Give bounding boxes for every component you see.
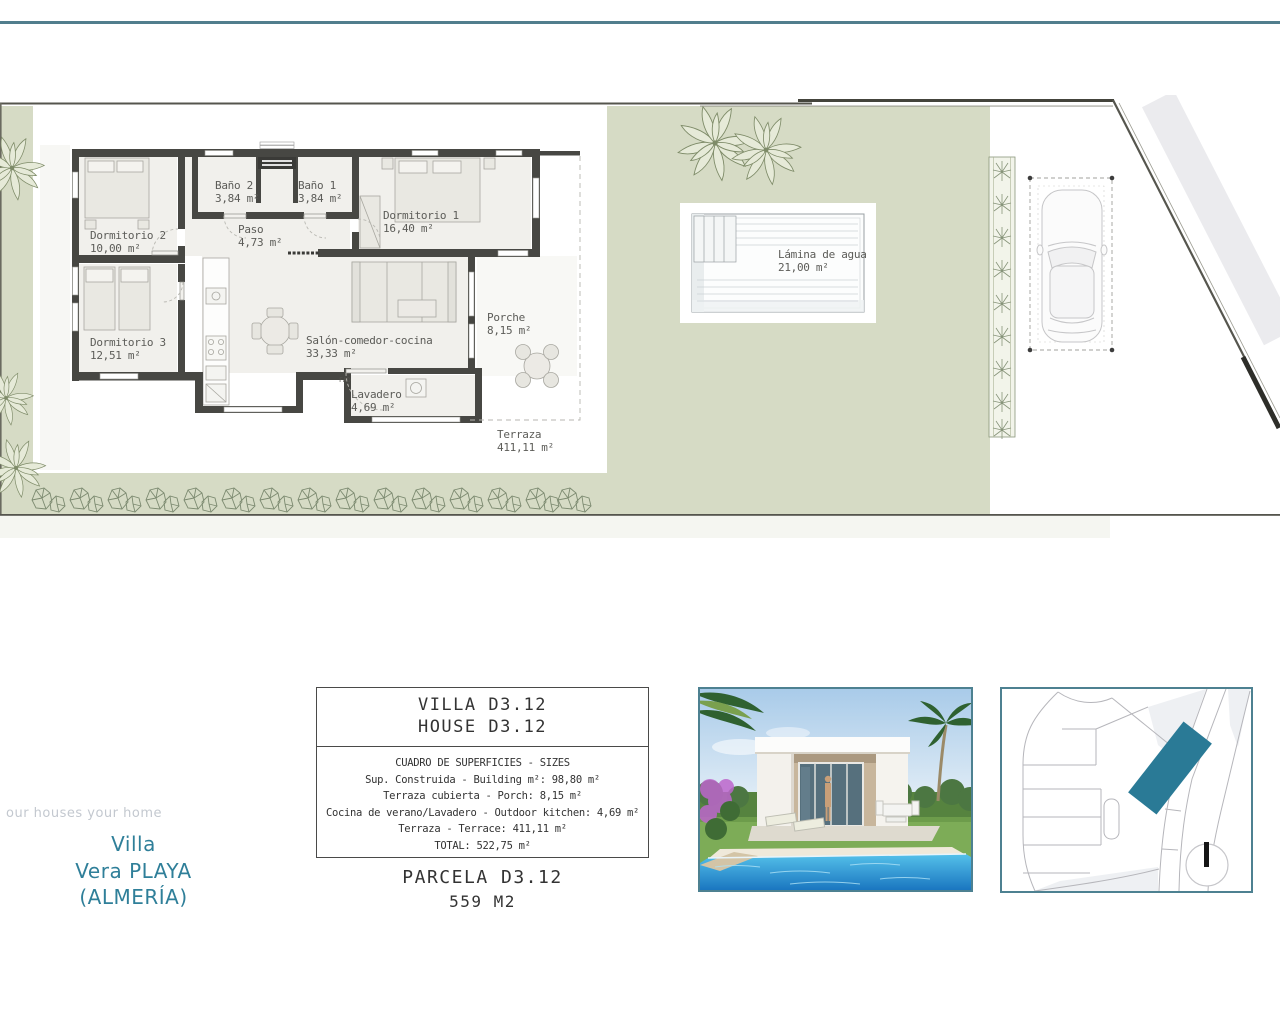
project-title-line2: Vera PLAYA	[36, 858, 231, 885]
room-label-salon: Salón-comedor-cocina33,33 m²	[306, 335, 432, 360]
project-title-line3: (ALMERÍA)	[36, 884, 231, 911]
room-label-paso: Paso4,73 m²	[238, 224, 282, 249]
room-label-bano1: Baño 13,84 m²	[298, 180, 342, 205]
house-code: HOUSE D3.12	[317, 716, 648, 738]
project-title: Villa Vera PLAYA (ALMERÍA)	[36, 831, 231, 911]
map-marker	[1204, 842, 1209, 867]
room-label-dormitorio1: Dormitorio 116,40 m²	[383, 210, 459, 235]
surface-line: Terraza - Terrace: 411,11 m²	[319, 821, 646, 838]
surface-table-lines: CUADRO DE SUPERFICIES - SIZES Sup. Const…	[317, 747, 648, 854]
parcel-title: PARCELA D3.12	[316, 866, 649, 890]
room-label-dormitorio2: Dormitorio 210,00 m²	[90, 230, 166, 255]
villa-code: VILLA D3.12	[317, 694, 648, 716]
pool-label: Lámina de agua21,00 m²	[778, 249, 867, 274]
room-label-terraza: Terraza411,11 m²	[497, 429, 554, 454]
parcel-area: 559 M2	[316, 890, 649, 914]
villa-render	[700, 689, 971, 890]
room-label-bano2: Baño 23,84 m²	[215, 180, 259, 205]
car-parking	[1028, 176, 1115, 353]
room-label-lavadero: Lavadero4,69 m²	[351, 389, 402, 414]
parcel-info: PARCELA D3.12 559 M2	[316, 866, 649, 914]
laundry-tag: FAD	[339, 376, 351, 384]
location-map-drawing	[1002, 689, 1251, 891]
hedge	[989, 157, 1015, 439]
plan-sheet: Baño 23,84 m² Baño 13,84 m² Paso4,73 m² …	[0, 0, 1280, 1024]
site-plan-drawing	[0, 95, 1280, 545]
surface-line: TOTAL: 522,75 m²	[319, 838, 646, 855]
villa-photo	[698, 687, 973, 892]
location-map	[1000, 687, 1253, 893]
room-label-dormitorio3: Dormitorio 312,51 m²	[90, 337, 166, 362]
car-icon	[1037, 190, 1107, 342]
surface-line: Terraza cubierta - Porch: 8,15 m²	[319, 788, 646, 805]
surface-line: Cocina de verano/Lavadero - Outdoor kitc…	[319, 805, 646, 822]
surface-table-title: VILLA D3.12 HOUSE D3.12	[317, 688, 648, 747]
surface-line: CUADRO DE SUPERFICIES - SIZES	[319, 755, 646, 772]
brand-tagline: our houses your home	[6, 806, 162, 821]
surface-line: Sup. Construida - Building m²: 98,80 m²	[319, 772, 646, 789]
surface-table: VILLA D3.12 HOUSE D3.12 CUADRO DE SUPERF…	[316, 687, 649, 858]
top-divider-rule	[0, 21, 1280, 24]
project-title-line1: Villa	[36, 831, 231, 858]
room-label-porche: Porche8,15 m²	[487, 312, 531, 337]
